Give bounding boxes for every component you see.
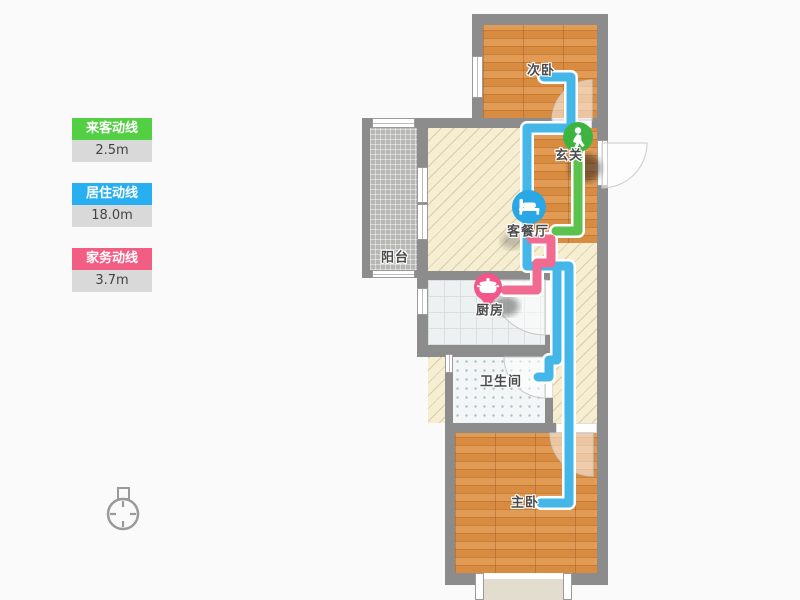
legend-visitor-value: 2.5m — [72, 140, 152, 162]
legend-living-title[interactable]: 居住动线 — [72, 183, 152, 205]
room-label-bedroom-master: 主卧 — [511, 492, 539, 511]
legend-housework-value: 3.7m — [72, 270, 152, 292]
room-label-kitchen: 厨房 — [476, 300, 504, 319]
legend-visitor-title[interactable]: 来客动线 — [72, 118, 152, 140]
compass-icon — [108, 488, 138, 529]
room-label-bedroom-second: 次卧 — [527, 60, 555, 79]
plan-overlay — [0, 0, 800, 600]
room-label-bathroom: 卫生间 — [480, 371, 522, 390]
room-label-entry: 玄关 — [555, 145, 583, 164]
room-label-balcony: 阳台 — [381, 247, 409, 266]
legend-housework-title[interactable]: 家务动线 — [72, 248, 152, 270]
door-arc-entrance — [602, 143, 647, 188]
floorplan-viewer: 次卧 玄关 阳台 客餐厅 厨房 卫生间 主卧 来客动线 2.5m 居住动线 18… — [0, 0, 800, 600]
legend-housework-line[interactable]: 家务动线 3.7m — [72, 248, 152, 292]
legend-living-value: 18.0m — [72, 205, 152, 227]
room-label-living-dining: 客餐厅 — [507, 221, 549, 240]
legend-living-line[interactable]: 居住动线 18.0m — [72, 183, 152, 227]
legend-visitor-line[interactable]: 来客动线 2.5m — [72, 118, 152, 162]
